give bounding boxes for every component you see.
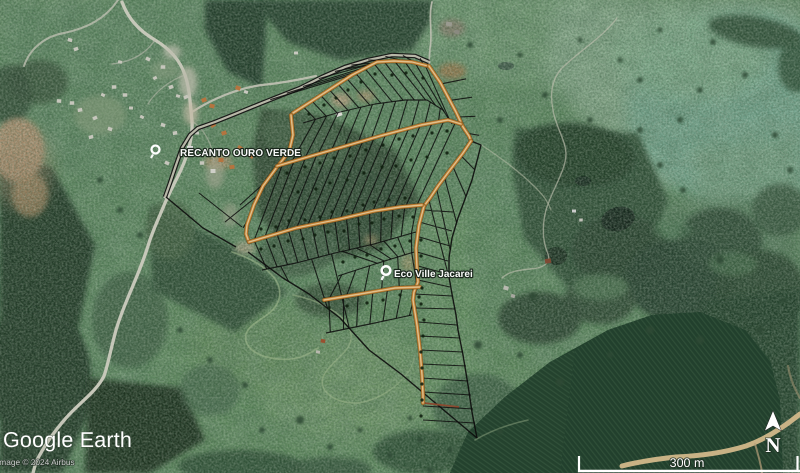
svg-text:300 m: 300 m bbox=[670, 456, 705, 470]
svg-text:Image © 2024 Airbus: Image © 2024 Airbus bbox=[0, 457, 75, 467]
svg-text:Google Earth: Google Earth bbox=[3, 428, 132, 452]
svg-text:Eco Ville Jacarei: Eco Ville Jacarei bbox=[394, 269, 473, 280]
svg-text:N: N bbox=[765, 433, 780, 457]
svg-text:RECANTO OURO VERDE: RECANTO OURO VERDE bbox=[180, 148, 301, 159]
